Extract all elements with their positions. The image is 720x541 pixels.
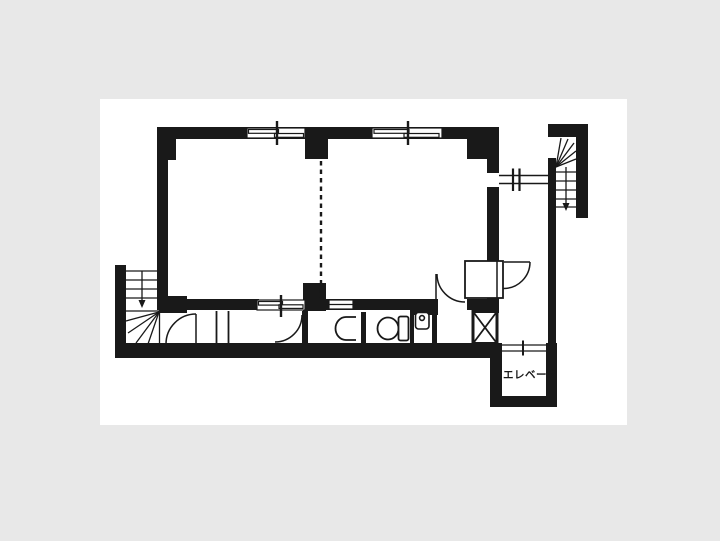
- doorway-recess-box: [465, 261, 503, 298]
- wall-stall-divider-3: [432, 312, 437, 344]
- wall-stall-divider-1: [361, 312, 366, 345]
- wall-bottom-left-span: [157, 299, 259, 310]
- wall-stair-left: [548, 158, 556, 348]
- wall-right-upper: [487, 139, 499, 173]
- wall-toilet-jamb: [302, 311, 308, 344]
- basin-icon: [416, 313, 430, 330]
- wall-left: [157, 139, 168, 309]
- wall-stall-divider-2: [410, 315, 414, 344]
- duct-shaft-icon: [473, 312, 497, 344]
- window-small-slot-icon: [329, 300, 353, 309]
- pier-bottom-center: [303, 283, 326, 311]
- wall-stair-right-bar: [576, 137, 588, 218]
- elevator-label: エレベータ: [503, 369, 558, 381]
- pier-top-right: [467, 139, 489, 159]
- wall-exterior-left: [115, 265, 126, 358]
- wall-elevator-bottom: [490, 396, 557, 407]
- urinal-icon: [336, 317, 357, 340]
- toilet-icon: [378, 317, 409, 341]
- wall-bottom-right-span: [467, 299, 499, 310]
- wall-top: [157, 127, 499, 139]
- pier-top-center: [305, 139, 328, 159]
- wall-stair-top-bar: [548, 124, 588, 137]
- floorplan-svg: エレベータ: [0, 0, 720, 541]
- wall-corridor-bottom: [118, 343, 499, 358]
- scanned-floorplan-page: エレベータ: [0, 0, 720, 541]
